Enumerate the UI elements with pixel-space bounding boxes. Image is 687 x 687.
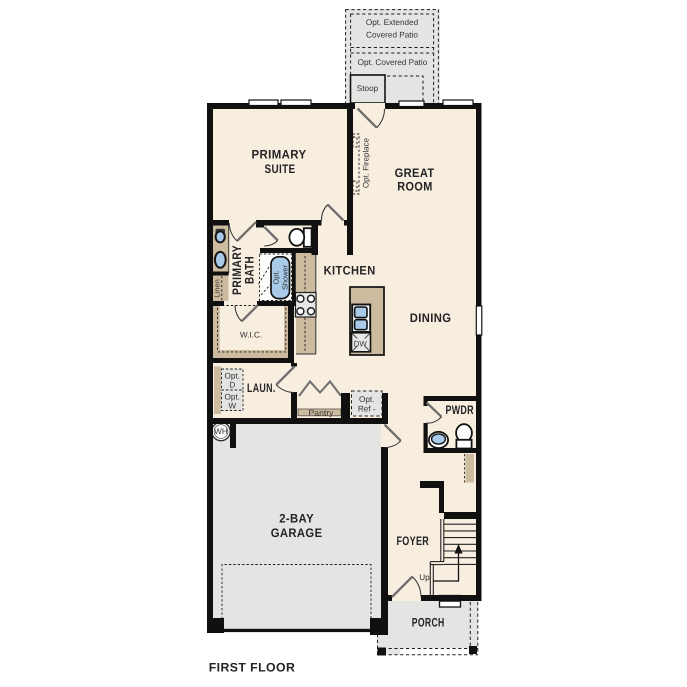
- svg-text:GARAGE: GARAGE: [271, 526, 323, 540]
- svg-text:ROOM: ROOM: [397, 180, 433, 194]
- svg-text:DW: DW: [354, 340, 367, 349]
- svg-text:FOYER: FOYER: [396, 534, 429, 548]
- svg-text:Opt.: Opt.: [359, 395, 374, 404]
- svg-text:PRIMARY: PRIMARY: [252, 148, 307, 162]
- svg-text:WH: WH: [214, 427, 228, 436]
- svg-text:Linen: Linen: [212, 279, 221, 297]
- svg-text:LAUN.: LAUN.: [247, 381, 276, 395]
- svg-text:Pantry: Pantry: [309, 408, 335, 417]
- svg-text:FIRST FLOOR: FIRST FLOOR: [209, 661, 296, 675]
- svg-text:D: D: [229, 381, 235, 390]
- svg-text:PORCH: PORCH: [412, 615, 445, 629]
- svg-text:2-BAY: 2-BAY: [279, 512, 314, 526]
- svg-text:Shower: Shower: [280, 264, 289, 290]
- svg-text:Up: Up: [419, 573, 430, 582]
- svg-text:BATH: BATH: [243, 256, 257, 284]
- svg-text:Ref -: Ref -: [358, 405, 376, 414]
- svg-text:W: W: [228, 402, 236, 411]
- svg-text:SUITE: SUITE: [265, 162, 296, 176]
- svg-text:Opt.: Opt.: [225, 393, 240, 402]
- svg-text:PWDR: PWDR: [445, 403, 474, 417]
- svg-text:W.I.C.: W.I.C.: [240, 331, 262, 340]
- svg-text:Stoop: Stoop: [357, 84, 379, 93]
- svg-text:Covered Patio: Covered Patio: [366, 31, 418, 40]
- svg-text:Opt.: Opt.: [271, 271, 280, 285]
- svg-text:DINING: DINING: [410, 311, 452, 325]
- svg-text:GREAT: GREAT: [395, 166, 435, 180]
- svg-text:Opt. Extended: Opt. Extended: [366, 18, 419, 27]
- svg-text:Opt. Covered Patio: Opt. Covered Patio: [358, 58, 428, 67]
- svg-text:Opt. Fireplace: Opt. Fireplace: [362, 137, 371, 188]
- svg-text:Opt.: Opt.: [225, 372, 240, 381]
- svg-text:KITCHEN: KITCHEN: [324, 263, 376, 277]
